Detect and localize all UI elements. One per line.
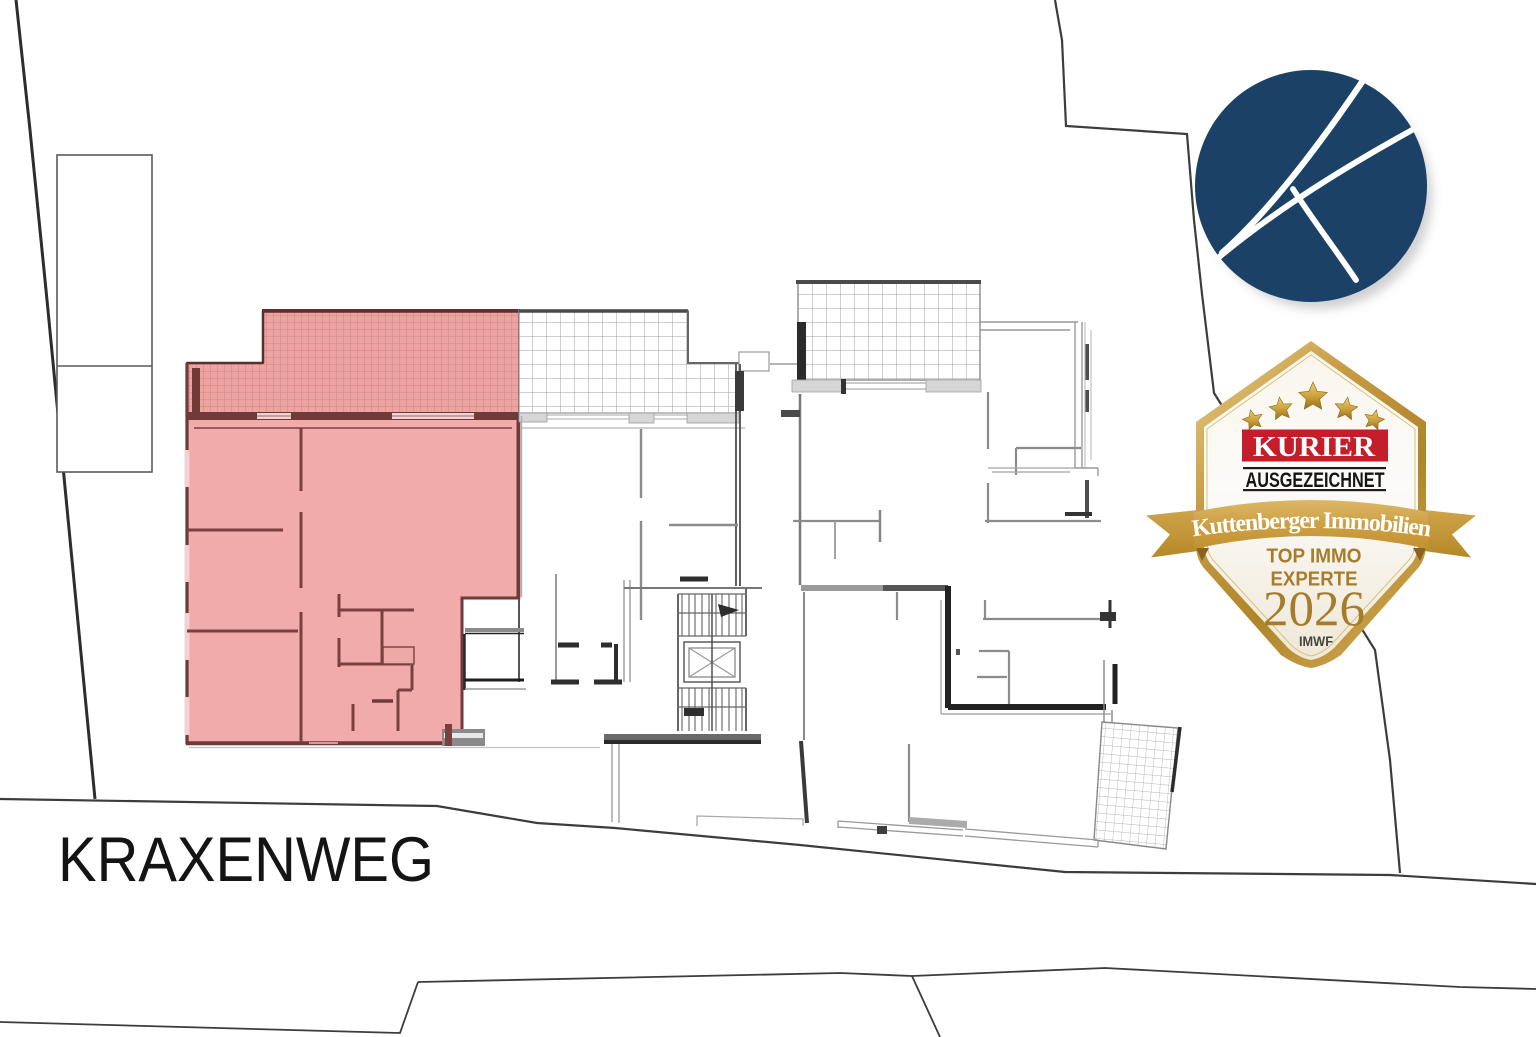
svg-text:KURIER: KURIER (1253, 432, 1376, 463)
svg-text:2026: 2026 (1263, 580, 1365, 636)
svg-text:IMWF: IMWF (1299, 634, 1333, 649)
svg-text:KRAXENWEG: KRAXENWEG (58, 825, 434, 895)
svg-text:TOP IMMO: TOP IMMO (1267, 546, 1362, 568)
svg-text:AUSGEZEICHNET: AUSGEZEICHNET (1246, 468, 1385, 492)
